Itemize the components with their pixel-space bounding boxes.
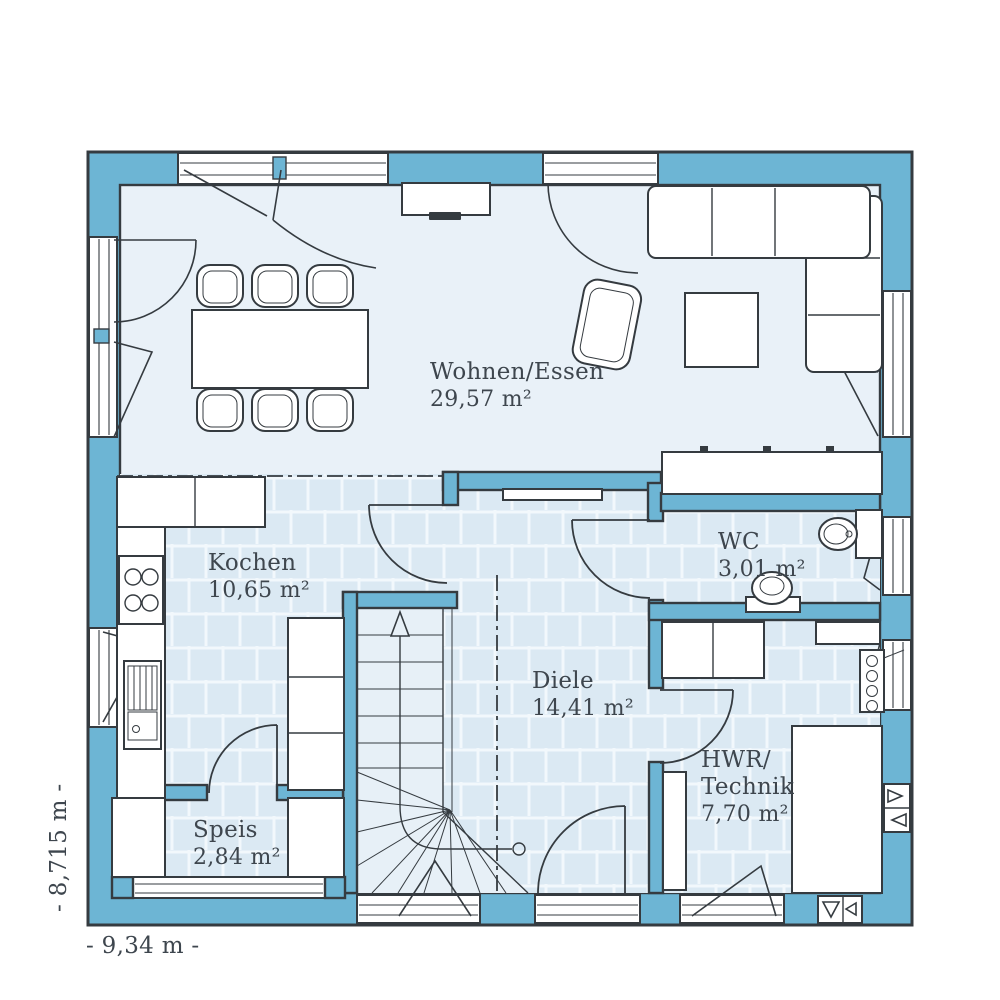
dimension-width: - 9,34 m - xyxy=(86,933,200,959)
floor-plan-page: Wohnen/Essen 29,57 m² Kochen 10,65 m² WC… xyxy=(0,0,1000,1000)
dimension-height: - 8,715 m - xyxy=(46,784,72,912)
wall-wc-north xyxy=(661,493,880,511)
sofa-top xyxy=(648,186,870,258)
dining-set xyxy=(192,265,368,431)
wall-stair-north xyxy=(343,592,457,608)
washbasin xyxy=(819,518,857,550)
speis-shelf-left xyxy=(112,798,165,877)
room-area-diele: 14,41 m² xyxy=(532,696,634,721)
room-label-diele: Diele xyxy=(532,668,594,694)
hwr-narrow-cabinet xyxy=(663,772,686,890)
room-area-kochen: 10,65 m² xyxy=(208,578,310,603)
wardrobe xyxy=(503,489,602,500)
room-label-hwr-2: Technik xyxy=(701,774,795,800)
window-north-small xyxy=(543,153,658,184)
sideboard xyxy=(662,452,882,494)
wall-pier xyxy=(325,877,345,898)
vanity xyxy=(856,510,882,558)
hwr-shelf xyxy=(816,622,880,644)
tv-icon xyxy=(429,212,461,220)
window-south-hwr xyxy=(680,895,784,923)
tv-board xyxy=(402,183,490,215)
wall-stub xyxy=(443,472,458,505)
coffee-table xyxy=(685,293,758,367)
window-west-kitchen xyxy=(89,628,117,727)
wall-pier xyxy=(112,877,133,898)
window-east-hwr xyxy=(883,640,911,710)
window-east-terrace-door xyxy=(883,291,911,437)
window-south-stair xyxy=(357,895,480,923)
wall-hwr-west xyxy=(649,762,663,893)
room-label-hwr-1: HWR/ xyxy=(701,747,771,773)
room-label-wohnen: Wohnen/Essen xyxy=(430,359,604,385)
window-mullion xyxy=(94,329,109,343)
room-label-kochen: Kochen xyxy=(208,550,296,576)
cooktop xyxy=(119,556,163,624)
room-area-wc: 3,01 m² xyxy=(718,557,806,582)
window-south-speis xyxy=(133,877,325,898)
speis-shelf-right xyxy=(288,798,344,877)
wall-living-diele xyxy=(443,472,661,490)
room-area-speis: 2,84 m² xyxy=(193,845,281,870)
wall-stair-west xyxy=(343,592,357,893)
room-label-speis: Speis xyxy=(193,817,258,843)
entrance-door-frame xyxy=(535,895,640,923)
kitchen-counter-top xyxy=(117,477,265,527)
heat-pump-unit xyxy=(792,726,882,893)
dining-table xyxy=(192,310,368,388)
room-area-hwr: 7,70 m² xyxy=(701,802,789,827)
room-area-wohnen: 29,57 m² xyxy=(430,387,532,412)
kitchen-tall-cabinet xyxy=(288,618,344,790)
sink-unit xyxy=(124,661,161,749)
window-east-wc xyxy=(883,517,911,595)
room-label-wc: WC xyxy=(718,529,760,555)
floor-plan-drawing: Wohnen/Essen 29,57 m² Kochen 10,65 m² WC… xyxy=(0,0,1000,1000)
